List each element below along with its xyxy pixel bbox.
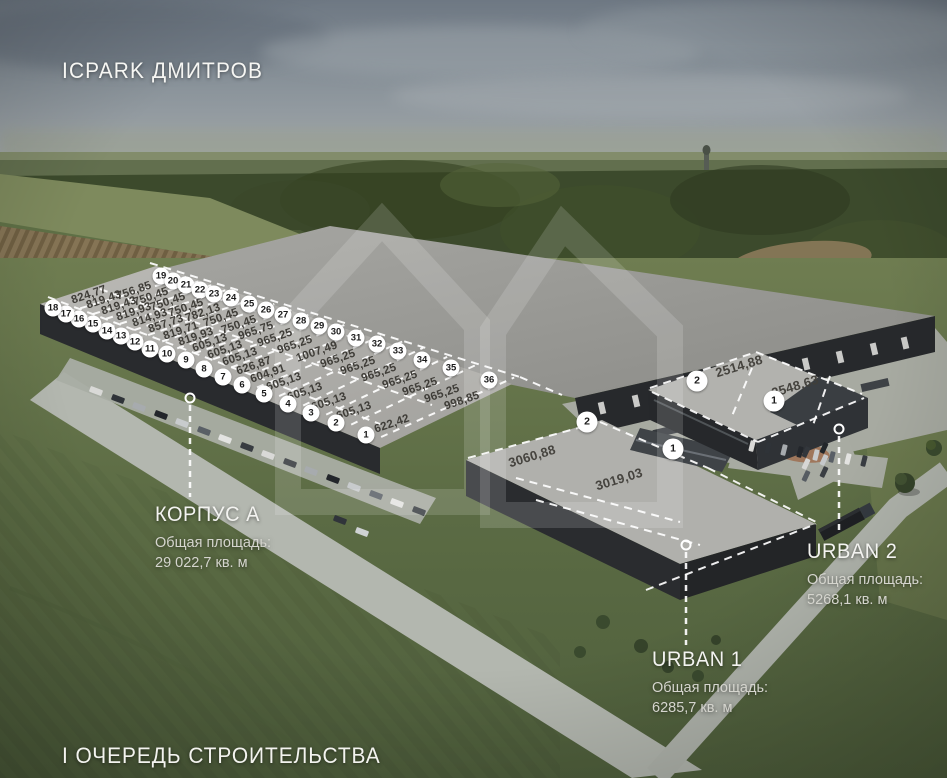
korpus-a-unit-marker-34[interactable]: 34 [414,352,431,369]
korpus-a-unit-marker-6[interactable]: 6 [234,377,251,394]
korpus-a-unit-marker-5[interactable]: 5 [256,386,273,403]
korpus-a-unit-marker-26[interactable]: 26 [258,302,275,319]
korpus-a-unit-marker-29[interactable]: 29 [311,318,328,335]
korpus-a-unit-marker-1[interactable]: 1 [358,427,375,444]
korpus-a-area-caption: Общая площадь: [155,535,271,551]
korpus-a-unit-marker-23[interactable]: 23 [206,286,223,303]
korpus-a-unit-marker-3[interactable]: 3 [303,405,320,422]
korpus-a-unit-marker-10[interactable]: 10 [159,346,176,363]
korpus-a-unit-marker-35[interactable]: 35 [443,360,460,377]
urban-2-name: URBAN 2 [807,540,917,564]
urban-1-area-caption: Общая площадь: [652,680,768,696]
korpus-a-unit-marker-11[interactable]: 11 [142,341,159,358]
urban-1-label: URBAN 1 Общая площадь: 6285,7 кв. м [652,648,768,716]
korpus-a-unit-marker-2[interactable]: 2 [328,415,345,432]
korpus-a-label: КОРПУС А Общая площадь: 29 022,7 кв. м [155,503,271,571]
korpus-a-unit-marker-36[interactable]: 36 [481,372,498,389]
urban-2-unit-marker-2[interactable]: 2 [687,371,708,392]
korpus-a-unit-marker-33[interactable]: 33 [390,343,407,360]
korpus-a-area-value: 29 022,7 кв. м [155,555,271,571]
korpus-a-unit-marker-28[interactable]: 28 [293,313,310,330]
korpus-a-unit-marker-7[interactable]: 7 [215,369,232,386]
urban-1-unit-area-1: 3019,03 [594,465,645,493]
urban-1-unit-marker-2[interactable]: 2 [577,412,598,433]
urban-1-area-value: 6285,7 кв. м [652,700,768,716]
urban-2-unit-marker-1[interactable]: 1 [764,391,785,412]
urban-1-unit-area-2: 3060,88 [507,442,558,470]
korpus-a-unit-marker-31[interactable]: 31 [348,330,365,347]
unit-annotations: 622,421605,132605,133605,134605,135604,9… [0,0,947,778]
korpus-a-unit-marker-24[interactable]: 24 [223,290,240,307]
korpus-a-unit-marker-30[interactable]: 30 [328,324,345,341]
korpus-a-unit-marker-32[interactable]: 32 [369,336,386,353]
urban-2-area-caption: Общая площадь: [807,572,923,588]
urban-1-name: URBAN 1 [652,648,762,672]
site-plan: 622,421605,132605,133605,134605,135604,9… [0,0,947,778]
project-title: ICPARK ДМИТРОВ [62,58,263,84]
korpus-a-unit-marker-18[interactable]: 18 [45,300,62,317]
korpus-a-unit-area-1: 622,42 [373,412,411,435]
korpus-a-name: КОРПУС А [155,503,265,527]
urban-2-unit-area-2: 2514,88 [714,352,765,380]
korpus-a-unit-marker-8[interactable]: 8 [196,361,213,378]
urban-2-label: URBAN 2 Общая площадь: 5268,1 кв. м [807,540,923,608]
korpus-a-unit-marker-27[interactable]: 27 [275,307,292,324]
urban-2-area-value: 5268,1 кв. м [807,592,923,608]
korpus-a-unit-marker-25[interactable]: 25 [241,296,258,313]
urban-1-unit-marker-1[interactable]: 1 [663,439,684,460]
korpus-a-unit-marker-4[interactable]: 4 [280,396,297,413]
construction-phase-label: I ОЧЕРЕДЬ СТРОИТЕЛЬСТВА [62,743,381,769]
korpus-a-unit-marker-9[interactable]: 9 [178,352,195,369]
